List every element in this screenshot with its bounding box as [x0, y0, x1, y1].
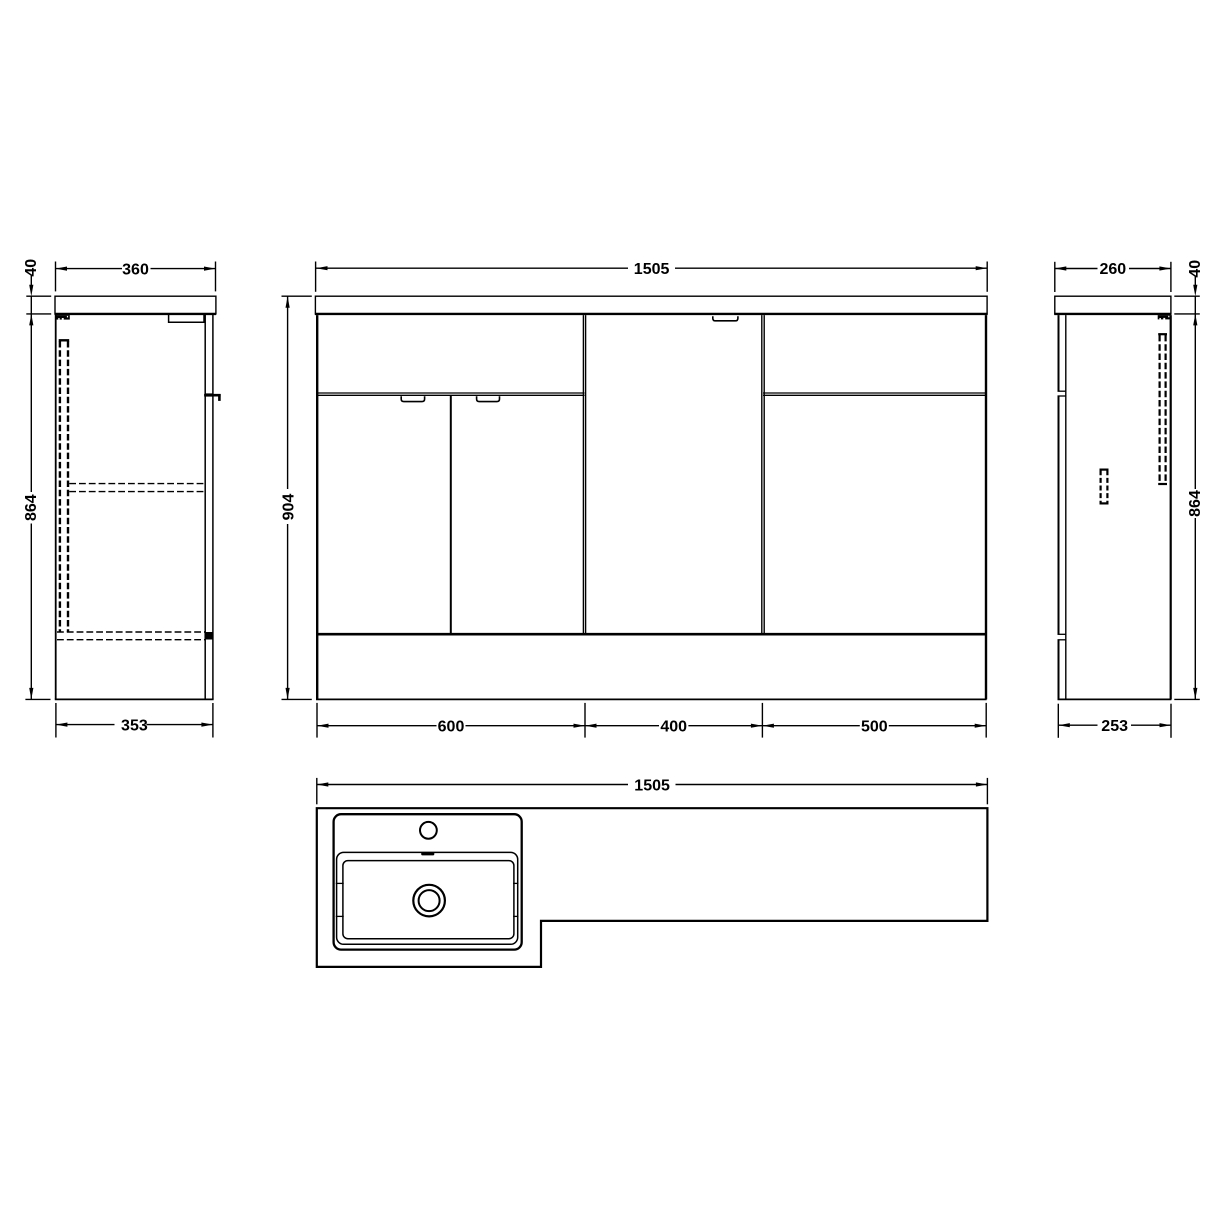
svg-text:600: 600 [438, 718, 465, 735]
svg-text:400: 400 [660, 718, 687, 735]
svg-text:40: 40 [23, 259, 40, 277]
svg-text:864: 864 [1187, 490, 1204, 517]
svg-text:253: 253 [1101, 718, 1128, 735]
svg-text:864: 864 [23, 494, 40, 521]
svg-text:260: 260 [1099, 261, 1126, 278]
svg-text:500: 500 [861, 718, 888, 735]
svg-text:1505: 1505 [634, 261, 670, 278]
svg-text:353: 353 [121, 717, 148, 734]
svg-text:1505: 1505 [634, 777, 670, 794]
svg-text:904: 904 [280, 494, 297, 521]
svg-text:40: 40 [1187, 260, 1204, 278]
svg-text:360: 360 [122, 261, 149, 278]
